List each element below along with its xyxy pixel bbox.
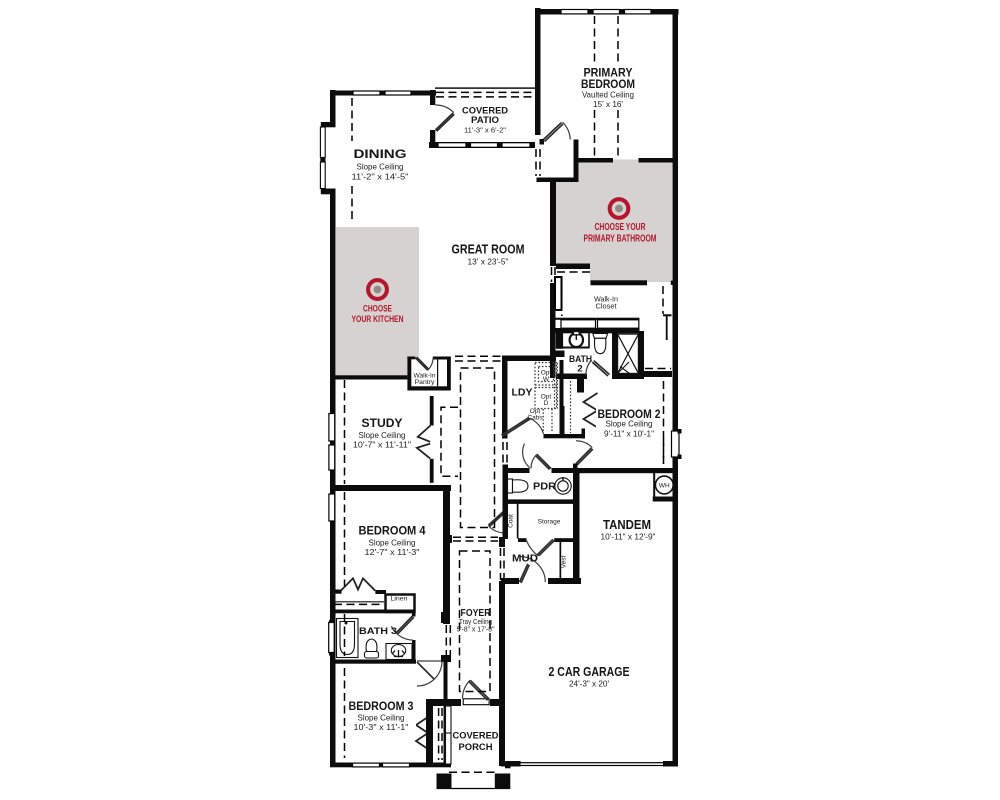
svg-text:Vest: Vest [560, 555, 567, 568]
svg-text:10'-7" x 11'-11": 10'-7" x 11'-11" [353, 440, 411, 450]
svg-text:TANDEM: TANDEM [603, 518, 651, 532]
svg-text:Cabs: Cabs [527, 415, 543, 422]
svg-text:Slope Ceiling: Slope Ceiling [358, 713, 405, 723]
svg-text:Walk-In: Walk-In [594, 297, 618, 304]
svg-text:GREAT ROOM: GREAT ROOM [452, 243, 525, 257]
svg-text:15' x 16': 15' x 16' [593, 99, 623, 109]
svg-text:5'-8" x 17'-8": 5'-8" x 17'-8" [457, 627, 495, 634]
svg-text:13' x 23'-5": 13' x 23'-5" [468, 257, 509, 267]
svg-text:LDY: LDY [512, 388, 533, 399]
svg-text:Slope Ceiling: Slope Ceiling [359, 430, 406, 440]
svg-text:Slope Ceiling: Slope Ceiling [606, 419, 653, 429]
svg-text:10'-3" x 11'-1": 10'-3" x 11'-1" [354, 722, 409, 732]
svg-text:DINING: DINING [354, 149, 407, 161]
svg-text:PORCH: PORCH [459, 742, 493, 753]
svg-text:9'-11" x 10'-1": 9'-11" x 10'-1" [604, 429, 654, 439]
svg-text:D: D [544, 400, 549, 407]
svg-text:2 CAR GARAGE: 2 CAR GARAGE [549, 665, 630, 679]
svg-text:Slope Ceiling: Slope Ceiling [357, 162, 404, 172]
svg-text:FOYER: FOYER [461, 608, 492, 619]
svg-text:BEDROOM 3: BEDROOM 3 [349, 701, 414, 713]
svg-text:BEDROOM 4: BEDROOM 4 [359, 526, 427, 538]
svg-text:Pantry: Pantry [415, 379, 436, 386]
svg-text:11'-2" x 14'-5": 11'-2" x 14'-5" [352, 172, 409, 182]
svg-text:PRIMARY BATHROOM: PRIMARY BATHROOM [584, 234, 657, 245]
svg-text:W: W [543, 376, 550, 383]
svg-text:2: 2 [577, 364, 582, 375]
svg-text:YOUR KITCHEN: YOUR KITCHEN [352, 314, 404, 325]
svg-text:CHOOSE YOUR: CHOOSE YOUR [595, 222, 647, 233]
svg-text:Tray Ceiling: Tray Ceiling [459, 619, 492, 626]
svg-text:Closet: Closet [596, 304, 617, 311]
svg-text:Storage: Storage [538, 519, 561, 526]
svg-text:MUD: MUD [512, 554, 538, 565]
svg-text:11'-3" x 6'-2": 11'-3" x 6'-2" [464, 128, 507, 135]
svg-text:Coat: Coat [508, 514, 515, 528]
svg-text:PRIMARY: PRIMARY [584, 68, 633, 80]
svg-text:10'-11" x 12'-9": 10'-11" x 12'-9" [601, 532, 656, 542]
svg-text:Vaulted Ceiling: Vaulted Ceiling [582, 90, 634, 100]
svg-text:12'-7" x 11'-3": 12'-7" x 11'-3" [365, 547, 420, 557]
svg-text:STUDY: STUDY [362, 418, 403, 430]
svg-text:PATIO: PATIO [471, 115, 499, 126]
svg-text:Linen: Linen [391, 596, 408, 603]
svg-text:24'-3" x 20': 24'-3" x 20' [569, 679, 609, 689]
svg-text:BATH 3: BATH 3 [359, 626, 397, 637]
svg-text:WH: WH [659, 482, 670, 489]
svg-text:COVERED: COVERED [453, 731, 499, 742]
svg-text:Slope Ceiling: Slope Ceiling [369, 538, 416, 548]
svg-text:PDR: PDR [533, 482, 557, 493]
